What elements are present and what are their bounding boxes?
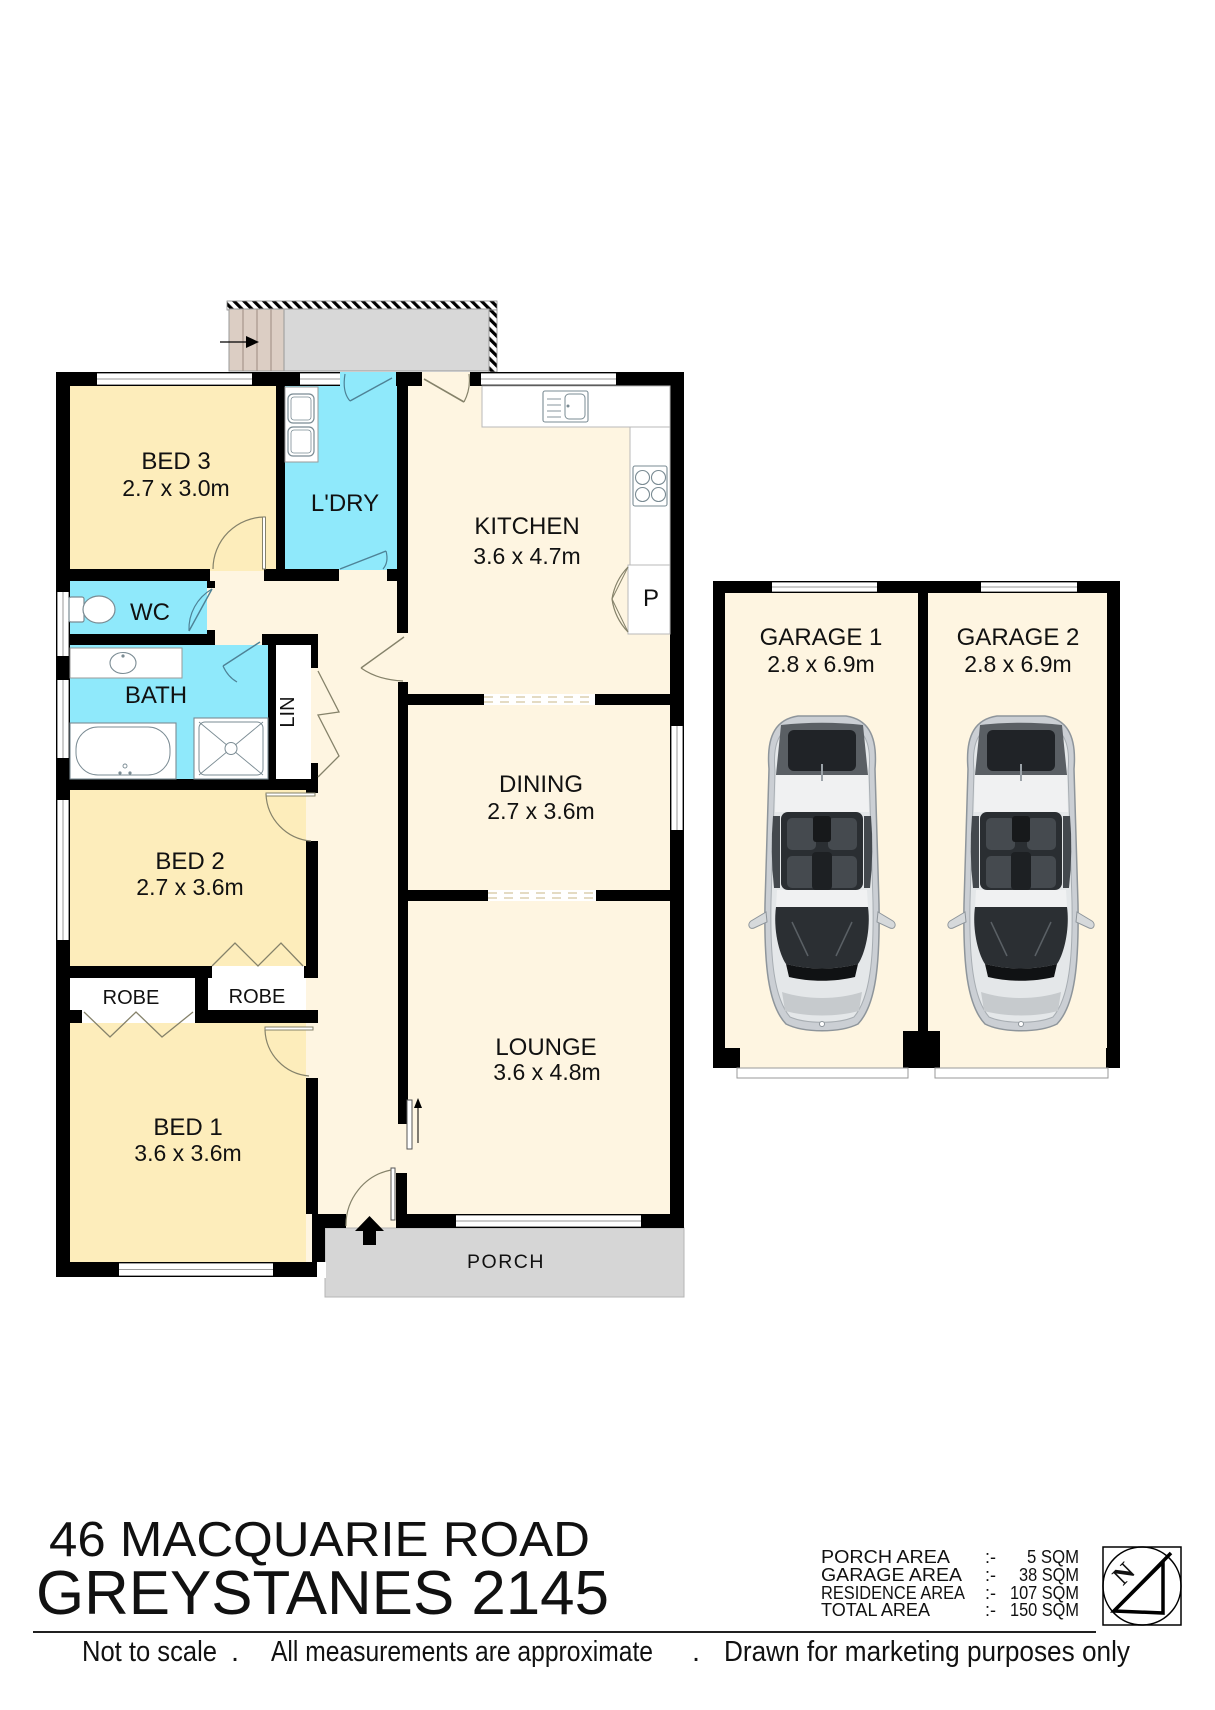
- svg-text:GARAGE 1: GARAGE 1: [760, 624, 883, 651]
- svg-text:.: .: [692, 1636, 700, 1668]
- svg-text::-: :-: [985, 1565, 996, 1585]
- svg-text:2.7 x 3.6m: 2.7 x 3.6m: [487, 798, 594, 824]
- svg-text:3.6 x 4.7m: 3.6 x 4.7m: [473, 543, 580, 569]
- svg-text:38 SQM: 38 SQM: [1019, 1565, 1079, 1585]
- svg-text:L'DRY: L'DRY: [311, 490, 379, 517]
- svg-text:PORCH AREA: PORCH AREA: [821, 1547, 950, 1567]
- svg-text:TOTAL AREA: TOTAL AREA: [821, 1600, 930, 1620]
- svg-text:.: .: [231, 1636, 239, 1668]
- svg-text:Drawn for marketing purposes o: Drawn for marketing purposes only: [724, 1636, 1130, 1668]
- svg-text:LOUNGE: LOUNGE: [495, 1034, 596, 1061]
- svg-text:ROBE: ROBE: [229, 986, 286, 1008]
- svg-text:KITCHEN: KITCHEN: [474, 513, 579, 540]
- svg-text:2.8 x 6.9m: 2.8 x 6.9m: [767, 651, 874, 677]
- svg-text:GREYSTANES 2145: GREYSTANES 2145: [36, 1559, 609, 1628]
- svg-text:DINING: DINING: [499, 771, 583, 798]
- svg-text:150 SQM: 150 SQM: [1010, 1600, 1079, 1620]
- svg-text:BED 1: BED 1: [153, 1114, 222, 1141]
- svg-text:3.6 x 3.6m: 3.6 x 3.6m: [134, 1140, 241, 1166]
- svg-text:WC: WC: [130, 599, 170, 626]
- svg-text:PORCH: PORCH: [467, 1251, 545, 1273]
- svg-text::-: :-: [985, 1547, 996, 1567]
- svg-text:5 SQM: 5 SQM: [1027, 1547, 1079, 1567]
- svg-text::-: :-: [985, 1600, 996, 1620]
- svg-text:3.6 x 4.8m: 3.6 x 4.8m: [493, 1059, 600, 1085]
- svg-text:2.8 x 6.9m: 2.8 x 6.9m: [964, 651, 1071, 677]
- svg-text:GARAGE 2: GARAGE 2: [957, 624, 1080, 651]
- svg-text:Not to scale: Not to scale: [82, 1636, 217, 1668]
- svg-text:BATH: BATH: [125, 682, 187, 709]
- svg-text:GARAGE AREA: GARAGE AREA: [821, 1565, 962, 1585]
- svg-text:LIN: LIN: [277, 696, 299, 727]
- svg-text:All measurements are approxima: All measurements are approximate: [271, 1636, 653, 1668]
- svg-text:2.7 x 3.6m: 2.7 x 3.6m: [136, 874, 243, 900]
- svg-text:ROBE: ROBE: [103, 987, 160, 1009]
- svg-text:2.7 x 3.0m: 2.7 x 3.0m: [122, 475, 229, 501]
- svg-text:BED 2: BED 2: [155, 848, 224, 875]
- svg-text:BED 3: BED 3: [141, 448, 210, 475]
- svg-text:P: P: [643, 585, 659, 612]
